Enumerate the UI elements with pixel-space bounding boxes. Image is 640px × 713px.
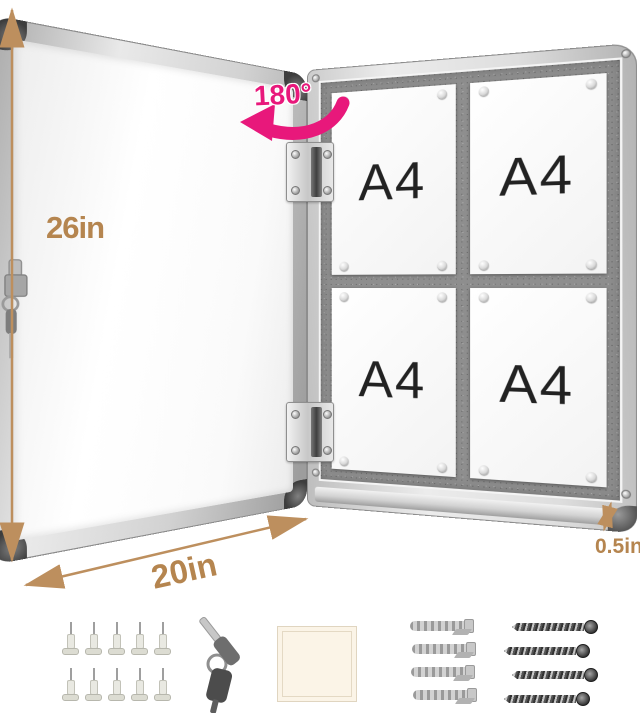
accessories-row [0, 612, 640, 713]
frame-screw [621, 489, 631, 499]
screw-shaft [512, 623, 584, 631]
screw [504, 692, 592, 706]
pin-body [67, 680, 75, 695]
pin-base [85, 648, 102, 655]
screws-group [504, 620, 600, 713]
paper-pin [437, 462, 447, 472]
pin-body [113, 634, 121, 649]
depth-dimension-label: 0.5in [595, 536, 640, 557]
paper-pin [340, 261, 349, 270]
push-pin [85, 668, 102, 708]
pin-base [154, 648, 171, 655]
key-upper [196, 614, 242, 667]
screw-head [584, 668, 598, 682]
a4-paper: A4 [332, 84, 456, 274]
width-dimension-label: 20in [148, 547, 220, 594]
hinge-screw [323, 150, 332, 159]
pin-body [136, 634, 144, 649]
push-pin [154, 668, 171, 708]
paper-pin [478, 86, 488, 96]
board-cabinet: A4 A4 A4 [307, 43, 637, 534]
frame-screw [621, 49, 631, 59]
paper-grid: A4 A4 A4 [332, 73, 607, 487]
wall-anchors-group [410, 618, 485, 710]
door-inner-face [13, 39, 293, 541]
key-lower [202, 667, 233, 713]
pin-body [136, 680, 144, 695]
paper-pin [478, 465, 488, 475]
height-dimension-label: 26in [46, 212, 104, 243]
push-pin [85, 622, 102, 662]
screw-shaft [504, 647, 576, 655]
push-pin [108, 622, 125, 662]
paper-pin [340, 292, 349, 301]
paper-label: A4 [359, 150, 427, 213]
pin-body [113, 680, 121, 695]
hinge-screw [291, 446, 300, 455]
hinge-screw [323, 186, 332, 195]
paper-pin [437, 292, 447, 301]
push-pin [154, 622, 171, 662]
pin-body [67, 634, 75, 649]
hinge-screw [291, 186, 300, 195]
paper-pin [340, 456, 349, 466]
paper-pin [478, 260, 488, 270]
push-pins-group [62, 622, 171, 708]
pin-body [159, 680, 167, 695]
a4-paper: A4 [470, 73, 607, 274]
pin-base [108, 694, 125, 701]
paper-pin [586, 472, 597, 483]
pin-base [108, 648, 125, 655]
paper-pin [586, 292, 597, 302]
paper-pin [437, 260, 447, 270]
anchor-fin [455, 698, 475, 704]
wall-anchor [413, 687, 485, 703]
paper-label: A4 [359, 349, 427, 411]
hinge-top [286, 142, 334, 202]
pin-body [90, 680, 98, 695]
hinge-screw [291, 410, 300, 419]
pin-base [85, 694, 102, 701]
keys-icon [183, 614, 253, 713]
pin-base [62, 694, 79, 701]
felt-backing: A4 A4 A4 [319, 57, 623, 503]
hinge-bottom [286, 402, 334, 462]
anchor-fin [452, 629, 472, 635]
paper-pin [478, 292, 488, 302]
push-pin [131, 622, 148, 662]
hinge-knuckle [311, 147, 322, 197]
screw-head [576, 692, 590, 706]
wall-anchor [411, 664, 483, 680]
paper-label: A4 [499, 142, 574, 208]
screw-head [584, 620, 598, 634]
pin-base [62, 648, 79, 655]
screw [512, 620, 600, 634]
hinge-knuckle [311, 407, 322, 457]
wall-anchor [410, 618, 482, 634]
pin-base [154, 694, 171, 701]
paper-pin [586, 259, 597, 269]
screw-head [576, 644, 590, 658]
adhesive-pad [277, 626, 357, 702]
pin-body [159, 634, 167, 649]
hinge-screw [291, 150, 300, 159]
anchor-fin [454, 652, 474, 658]
hinge-screw [323, 446, 332, 455]
paper-pin [586, 78, 597, 89]
frame-screw [312, 468, 320, 477]
screw [504, 644, 592, 658]
hinge-screw [323, 410, 332, 419]
anchor-fin [453, 675, 473, 681]
pin-base [131, 694, 148, 701]
wall-anchor [412, 641, 484, 657]
push-pin [62, 668, 79, 708]
lock-with-key-icon [0, 255, 38, 367]
screw-shaft [504, 695, 576, 703]
paper-label: A4 [499, 353, 574, 419]
product-photo: A4 A4 A4 [0, 0, 640, 713]
a4-paper: A4 [332, 287, 456, 477]
screw-shaft [512, 671, 584, 679]
push-pin [62, 622, 79, 662]
paper-pin [340, 96, 349, 106]
screw [512, 668, 600, 682]
rotation-label: 180° [253, 78, 313, 113]
push-pin [131, 668, 148, 708]
a4-paper: A4 [470, 287, 607, 487]
paper-pin [437, 89, 447, 99]
pin-body [90, 634, 98, 649]
push-pin [108, 668, 125, 708]
pin-base [131, 648, 148, 655]
